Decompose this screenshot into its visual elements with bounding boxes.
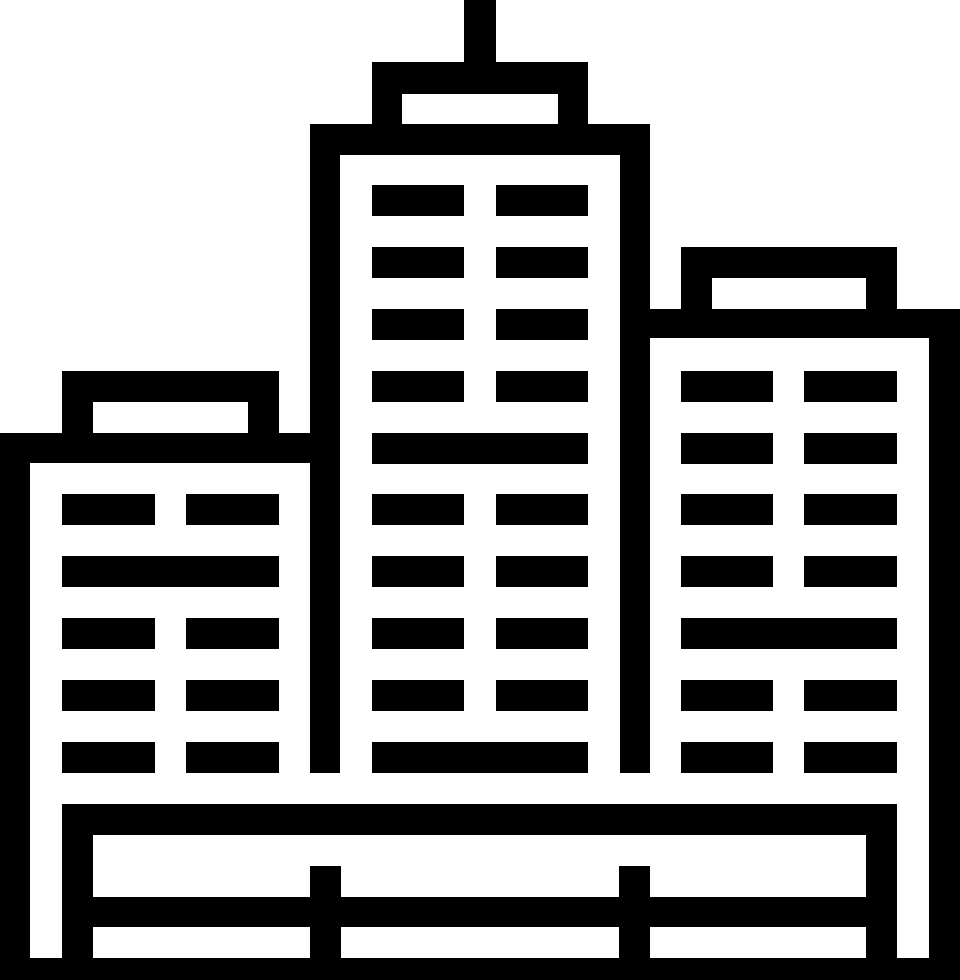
right-full-band <box>681 618 897 649</box>
right-building <box>620 247 960 980</box>
center-tower <box>310 0 650 773</box>
left-building <box>0 371 340 980</box>
left-roof-cap <box>62 371 279 434</box>
right-top-band <box>620 309 960 338</box>
center-right-wall <box>620 155 650 773</box>
fence-rail <box>93 897 867 927</box>
left-outer-wall <box>0 463 30 980</box>
city-buildings-icon <box>0 0 960 980</box>
icon-stage <box>0 0 960 980</box>
base-platform <box>0 804 960 980</box>
right-window-rows <box>681 371 897 773</box>
left-window-rows <box>62 494 279 773</box>
fence-post-right <box>619 866 650 959</box>
fence-post-left <box>310 866 341 959</box>
left-top-band <box>0 433 340 463</box>
platform-right-wall <box>866 835 897 959</box>
center-window-rows <box>372 185 588 773</box>
ground-line <box>0 958 960 980</box>
right-outer-wall <box>929 338 960 980</box>
antenna <box>464 0 496 63</box>
center-left-wall <box>310 155 340 773</box>
center-full-band-1 <box>372 433 588 464</box>
right-roof-cap <box>681 247 897 310</box>
platform-top-band <box>62 804 897 835</box>
center-full-band-2 <box>372 742 588 773</box>
center-roof-cap <box>372 62 588 125</box>
platform-left-wall <box>62 835 93 959</box>
center-top-band <box>310 124 650 155</box>
left-full-band <box>62 556 279 587</box>
